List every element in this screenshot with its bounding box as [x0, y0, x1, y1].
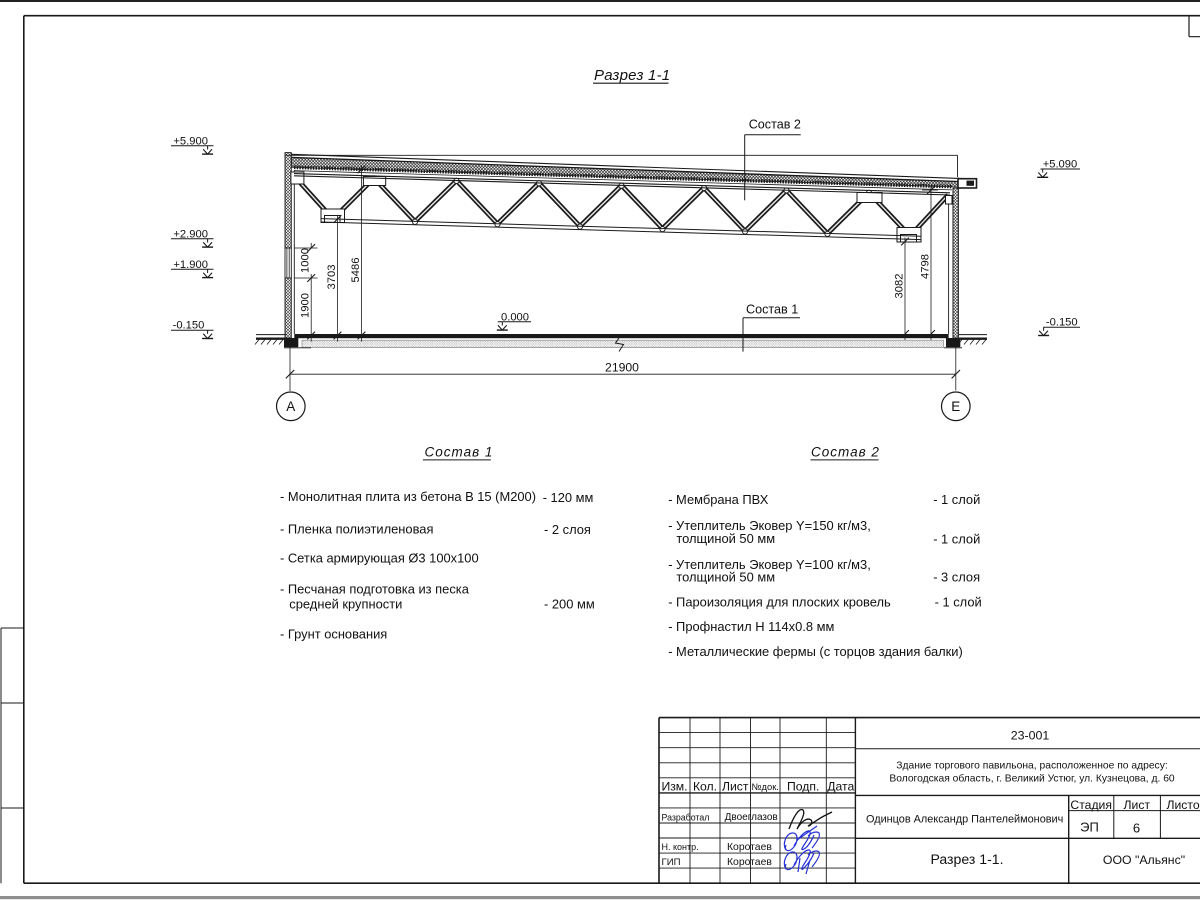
- svg-text:толщиной 50 мм: толщиной 50 мм: [676, 531, 775, 546]
- svg-text:Коротаев: Коротаев: [727, 857, 772, 868]
- svg-text:- Металлические фермы (с торцо: - Металлические фермы (с торцов здания б…: [668, 644, 963, 659]
- svg-text:средней крупности: средней крупности: [289, 597, 402, 612]
- svg-text:Кол.: Кол.: [693, 779, 717, 793]
- svg-text:Стадия: Стадия: [1070, 798, 1112, 812]
- svg-text:- Пленка полиэтиленовая: - Пленка полиэтиленовая: [280, 522, 433, 537]
- svg-text:Одинцов Александр Пантелеймоно: Одинцов Александр Пантелеймонович: [866, 813, 1063, 825]
- svg-text:Листов: Листов: [1167, 798, 1200, 812]
- svg-text:Состав 2: Состав 2: [749, 117, 801, 131]
- svg-text:- Пароизоляция для плоских кро: - Пароизоляция для плоских кровель: [668, 594, 891, 609]
- svg-text:Изм.: Изм.: [661, 779, 687, 793]
- svg-text:ГИП: ГИП: [662, 857, 681, 868]
- svg-text:3082: 3082: [894, 274, 906, 299]
- svg-text:№док.: №док.: [751, 781, 778, 792]
- svg-text:ООО "Альянс": ООО "Альянс": [1103, 853, 1185, 867]
- svg-text:Здание торгового павильона, ра: Здание торгового павильона, расположенно…: [896, 760, 1167, 771]
- svg-text:Двоеглазов: Двоеглазов: [725, 812, 778, 823]
- svg-text:Состав 1: Состав 1: [746, 303, 798, 317]
- svg-text:Н. контр.: Н. контр.: [662, 842, 699, 852]
- svg-text:Лист: Лист: [1124, 798, 1151, 812]
- svg-text:Разрез 1-1.: Разрез 1-1.: [930, 851, 1003, 867]
- svg-text:Е: Е: [951, 399, 960, 414]
- svg-text:Коротаев: Коротаев: [727, 842, 772, 853]
- svg-text:- 200 мм: - 200 мм: [544, 597, 595, 612]
- svg-text:Лист: Лист: [722, 779, 749, 793]
- svg-text:- 120 мм: - 120 мм: [543, 490, 594, 505]
- svg-text:Вологодская область, г. Велики: Вологодская область, г. Великий Устюг, у…: [889, 772, 1175, 784]
- svg-text:Дата: Дата: [827, 779, 854, 793]
- svg-text:6: 6: [1133, 821, 1140, 836]
- svg-text:A: A: [286, 399, 295, 414]
- svg-text:ЭП: ЭП: [1080, 820, 1099, 835]
- svg-text:5486: 5486: [350, 258, 362, 283]
- svg-text:- 3 слоя: - 3 слоя: [933, 570, 980, 585]
- svg-text:- 1 слой: - 1 слой: [933, 492, 980, 507]
- svg-text:Состав 1: Состав 1: [425, 444, 494, 459]
- svg-text:21900: 21900: [605, 361, 639, 375]
- svg-text:- Монолитная плита из бетона В: - Монолитная плита из бетона В 15 (М200): [280, 489, 536, 504]
- svg-text:- Мембрана ПВХ: - Мембрана ПВХ: [668, 492, 769, 507]
- svg-text:- 2 слоя: - 2 слоя: [544, 522, 591, 537]
- svg-text:- 1 слой: - 1 слой: [935, 594, 982, 609]
- svg-text:- 1 слой: - 1 слой: [933, 532, 980, 547]
- svg-text:Разработал: Разработал: [662, 812, 710, 822]
- svg-text:- Профнастил Н 114х0.8 мм: - Профнастил Н 114х0.8 мм: [668, 619, 834, 634]
- svg-text:толщиной 50 мм: толщиной 50 мм: [676, 570, 775, 585]
- svg-text:Разрез 1-1: Разрез 1-1: [594, 67, 670, 84]
- svg-text:3703: 3703: [326, 265, 338, 290]
- svg-text:1900: 1900: [300, 293, 312, 318]
- svg-text:4798: 4798: [920, 254, 932, 279]
- svg-text:23-001: 23-001: [1011, 728, 1050, 742]
- svg-text:- Грунт основания: - Грунт основания: [280, 627, 387, 642]
- svg-text:Состав 2: Состав 2: [811, 444, 880, 459]
- svg-text:Подп.: Подп.: [787, 779, 819, 793]
- svg-text:- Песчаная подготовка из песка: - Песчаная подготовка из песка: [280, 581, 470, 596]
- svg-text:1000: 1000: [300, 248, 312, 273]
- svg-text:- Сетка армирующая Ø3 100х100: - Сетка армирующая Ø3 100х100: [280, 551, 479, 566]
